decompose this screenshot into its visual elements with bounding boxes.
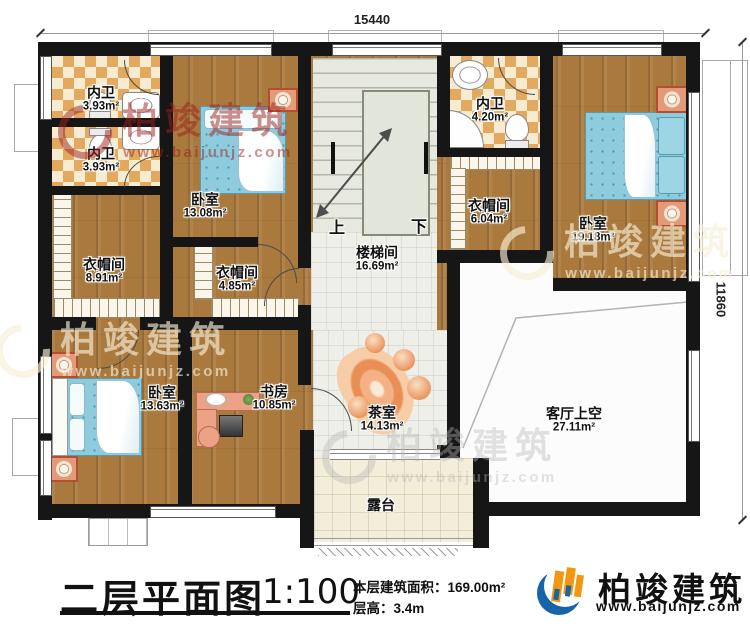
wall-segment <box>298 305 311 330</box>
dimension-line-top <box>40 33 706 34</box>
room-label-tea: 茶室14.13m² <box>361 404 404 433</box>
window <box>40 56 52 120</box>
wall-segment <box>173 237 258 247</box>
sink-symbol <box>122 92 160 119</box>
stair-arrow-tick <box>331 142 335 174</box>
wardrobe-rail-symbol <box>53 298 160 318</box>
wall-segment <box>473 458 489 548</box>
wall-segment <box>52 118 160 127</box>
room-label-void: 客厅上空27.11m² <box>546 405 602 434</box>
wall-segment <box>298 330 311 385</box>
nightstand-symbol <box>268 88 298 112</box>
wall-segment <box>298 56 311 268</box>
window <box>150 506 276 518</box>
stair-up-label: 上 <box>329 214 345 238</box>
pillow-symbol <box>204 109 282 129</box>
room-label-cloak-mid: 衣帽间4.85m² <box>216 264 258 293</box>
rug-dot-symbol <box>407 376 431 400</box>
wall-segment <box>140 317 311 330</box>
wall-segment <box>447 263 460 458</box>
window <box>40 356 52 434</box>
wall-segment <box>437 56 450 148</box>
window <box>150 44 272 56</box>
floor-area-label: 本层建筑面积： <box>353 580 448 595</box>
terrace-door <box>330 449 440 460</box>
window <box>688 350 700 442</box>
wall-segment <box>178 330 192 504</box>
floor-height-line: 层高：3.4m <box>353 597 424 617</box>
dimension-line-right <box>742 42 743 520</box>
rug-dot-symbol <box>365 333 385 353</box>
dimension-top-value: 15440 <box>337 12 407 27</box>
wall-segment <box>52 317 96 330</box>
duvet-symbol <box>238 130 284 192</box>
window <box>562 44 662 56</box>
sink-symbol <box>452 60 488 90</box>
window <box>40 440 52 496</box>
eave-hatch <box>318 548 458 556</box>
room-label-bath1: 内卫3.93m² <box>83 84 119 113</box>
wall-segment <box>437 445 460 458</box>
dimension-right-value: 11860 <box>714 277 729 323</box>
wardrobe-rail-symbol <box>450 168 466 250</box>
floor-area-value: 169.00m² <box>448 580 506 595</box>
wall-segment <box>437 148 553 157</box>
headboard-symbol <box>52 378 68 456</box>
terrace-railing <box>314 538 473 546</box>
nightstand-symbol <box>656 200 688 227</box>
wall-segment <box>160 56 173 317</box>
nightstand-symbol <box>656 86 688 113</box>
wall-segment <box>540 56 553 259</box>
wardrobe-rail-symbol <box>53 192 72 300</box>
pillow-symbol <box>69 418 85 451</box>
wall-segment <box>553 278 686 291</box>
floor-height-label: 层高： <box>353 601 394 616</box>
exterior-steps <box>88 518 148 546</box>
duvet-symbol <box>624 114 656 198</box>
brand-url: www.baijunjz.com <box>596 598 741 614</box>
stair-down-label: 下 <box>411 213 427 237</box>
room-label-study: 书房10.85m² <box>253 383 296 412</box>
window <box>332 44 442 56</box>
room-label-stair-hall: 楼梯间16.69m² <box>356 244 399 273</box>
room-label-bedroom-top: 卧室13.08m² <box>184 191 227 220</box>
wall-segment <box>52 186 160 195</box>
pillow-symbol <box>658 156 685 194</box>
room-label-cloak-right: 衣帽间6.04m² <box>468 197 510 226</box>
floor-area-line: 本层建筑面积：169.00m² <box>353 576 505 596</box>
pillow-symbol <box>658 117 685 155</box>
hat-symbol <box>206 393 226 406</box>
wardrobe-rail-symbol <box>194 240 213 300</box>
room-label-terrace: 露台 <box>367 497 395 513</box>
right-bay-inner-line <box>702 60 731 274</box>
wall-segment <box>474 502 700 516</box>
toilet-tank-symbol <box>89 128 111 136</box>
room-label-bath3: 内卫4.20m² <box>472 95 508 124</box>
room-label-cloak-left: 衣帽间8.91m² <box>83 256 125 285</box>
sink-symbol <box>122 124 160 150</box>
dimension-tick <box>701 28 710 37</box>
toilet-symbol <box>505 114 529 142</box>
computer-monitor-symbol <box>219 415 243 437</box>
duvet-symbol <box>96 380 140 454</box>
floor-plan-page: { "meta": { "title": "二层平面图", "scale": "… <box>0 0 750 628</box>
stair-arrow-tick <box>424 142 428 174</box>
pillow-symbol <box>69 383 85 416</box>
chair-symbol <box>198 426 220 448</box>
wall-segment <box>300 445 314 458</box>
void-floor <box>553 291 686 502</box>
nightstand-symbol <box>50 456 78 482</box>
plan-scale: 1:100 <box>262 572 360 612</box>
wall-segment <box>437 250 553 263</box>
nightstand-symbol <box>50 352 78 378</box>
rug-dot-symbol <box>393 349 415 371</box>
window <box>688 92 700 282</box>
floor-height-value: 3.4m <box>394 601 425 616</box>
brand-logo-icon <box>533 560 591 620</box>
room-label-bedroom-right: 卧室19.18m² <box>572 215 615 244</box>
dimension-tick <box>738 515 747 524</box>
room-label-bath2: 内卫3.93m² <box>83 145 119 174</box>
room-label-bedroom-bottom: 卧室13.63m² <box>141 384 184 413</box>
